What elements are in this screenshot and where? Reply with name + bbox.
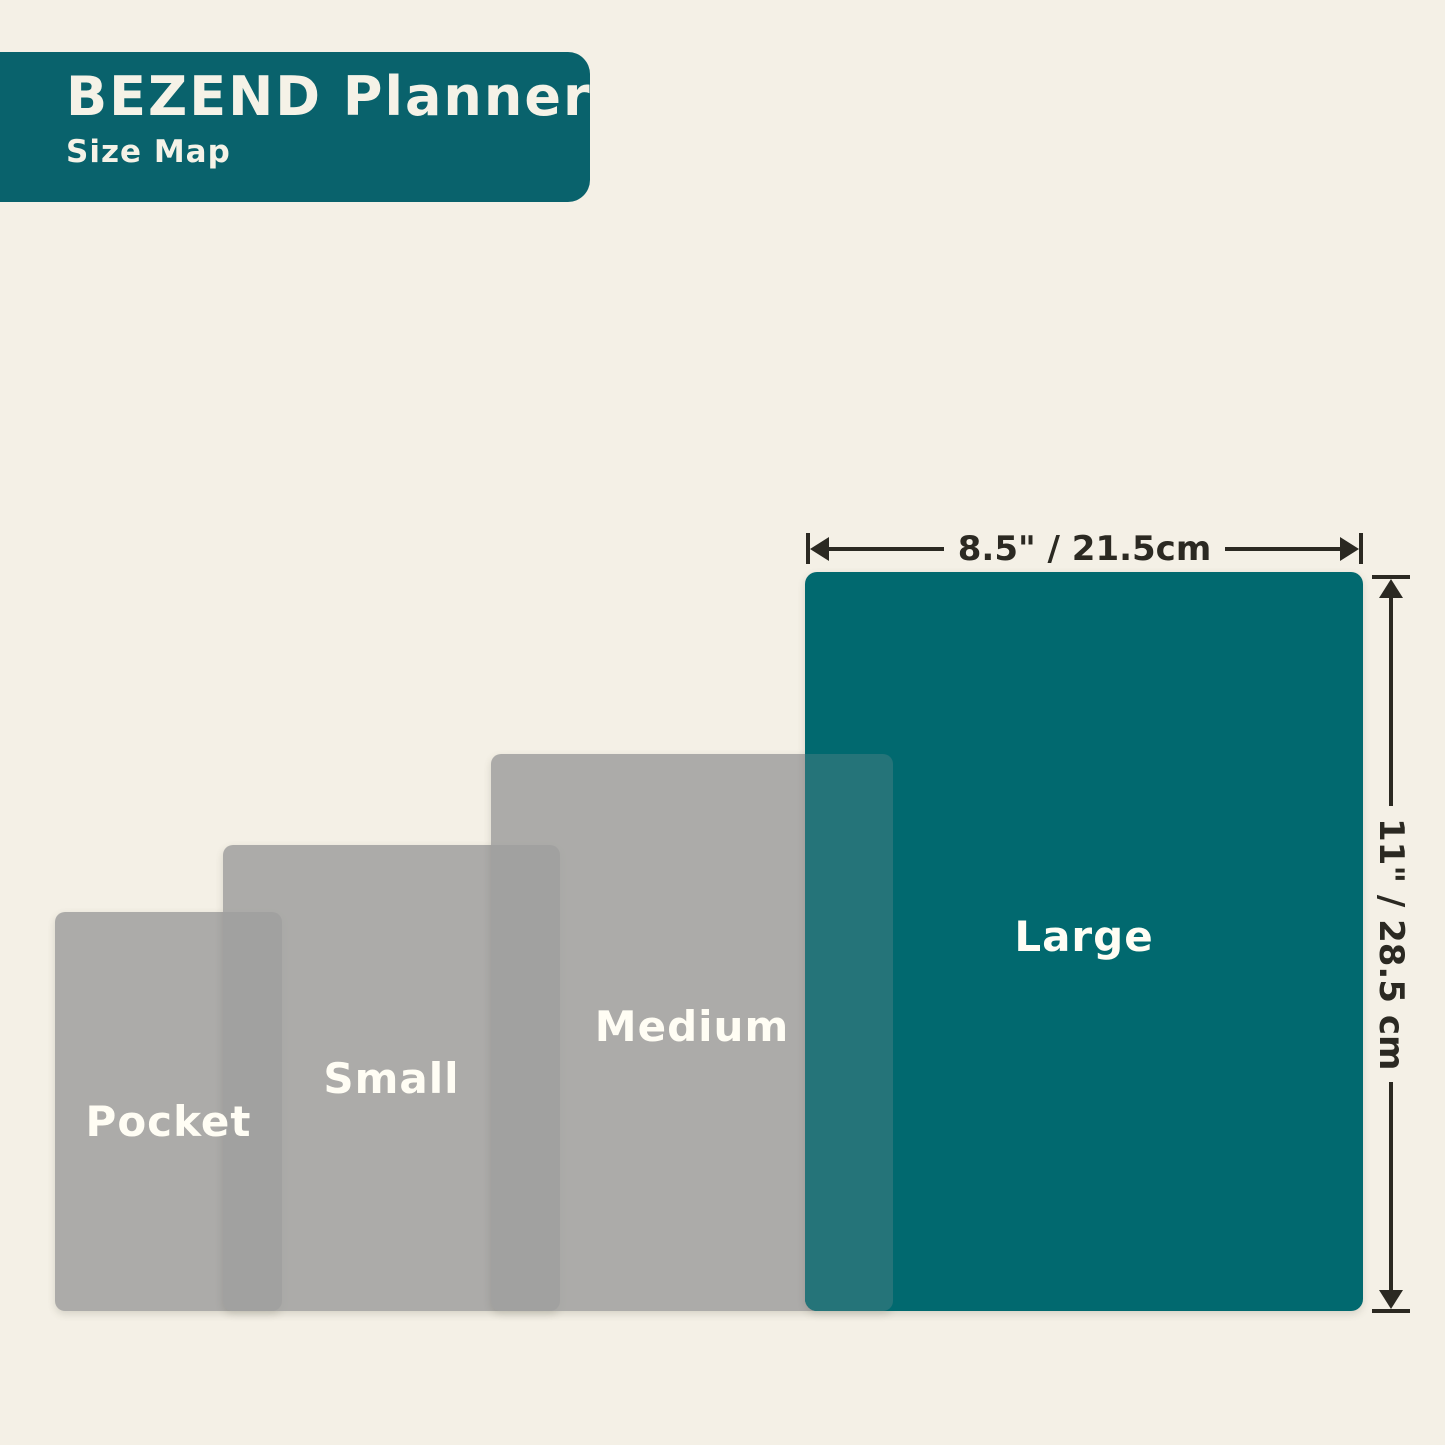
arrow-right-icon bbox=[1340, 537, 1359, 561]
dimension-line bbox=[1225, 547, 1340, 551]
page-subtitle: Size Map bbox=[66, 134, 590, 170]
dimension-line bbox=[1389, 598, 1393, 806]
dimension-end-tick bbox=[1359, 533, 1363, 564]
size-map-canvas: BEZEND Planner Size Map Pocket Small Med… bbox=[0, 0, 1445, 1445]
arrow-up-icon bbox=[1379, 579, 1403, 598]
brand-title: BEZEND Planner bbox=[66, 66, 590, 128]
dimension-line bbox=[829, 547, 944, 551]
width-dimension-annotation: 8.5" / 21.5cm bbox=[806, 532, 1363, 565]
medium-over-large-overlap bbox=[805, 754, 893, 1311]
dimension-end-tick bbox=[1372, 1309, 1410, 1313]
height-dimension-annotation: 11" / 28.5 cm bbox=[1372, 575, 1410, 1313]
arrow-down-icon bbox=[1379, 1290, 1403, 1309]
width-dimension-label: 8.5" / 21.5cm bbox=[958, 529, 1212, 569]
height-dimension-label: 11" / 28.5 cm bbox=[1371, 818, 1411, 1070]
dimension-line bbox=[1389, 1082, 1393, 1290]
header-card: BEZEND Planner Size Map bbox=[0, 52, 590, 202]
arrow-left-icon bbox=[810, 537, 829, 561]
